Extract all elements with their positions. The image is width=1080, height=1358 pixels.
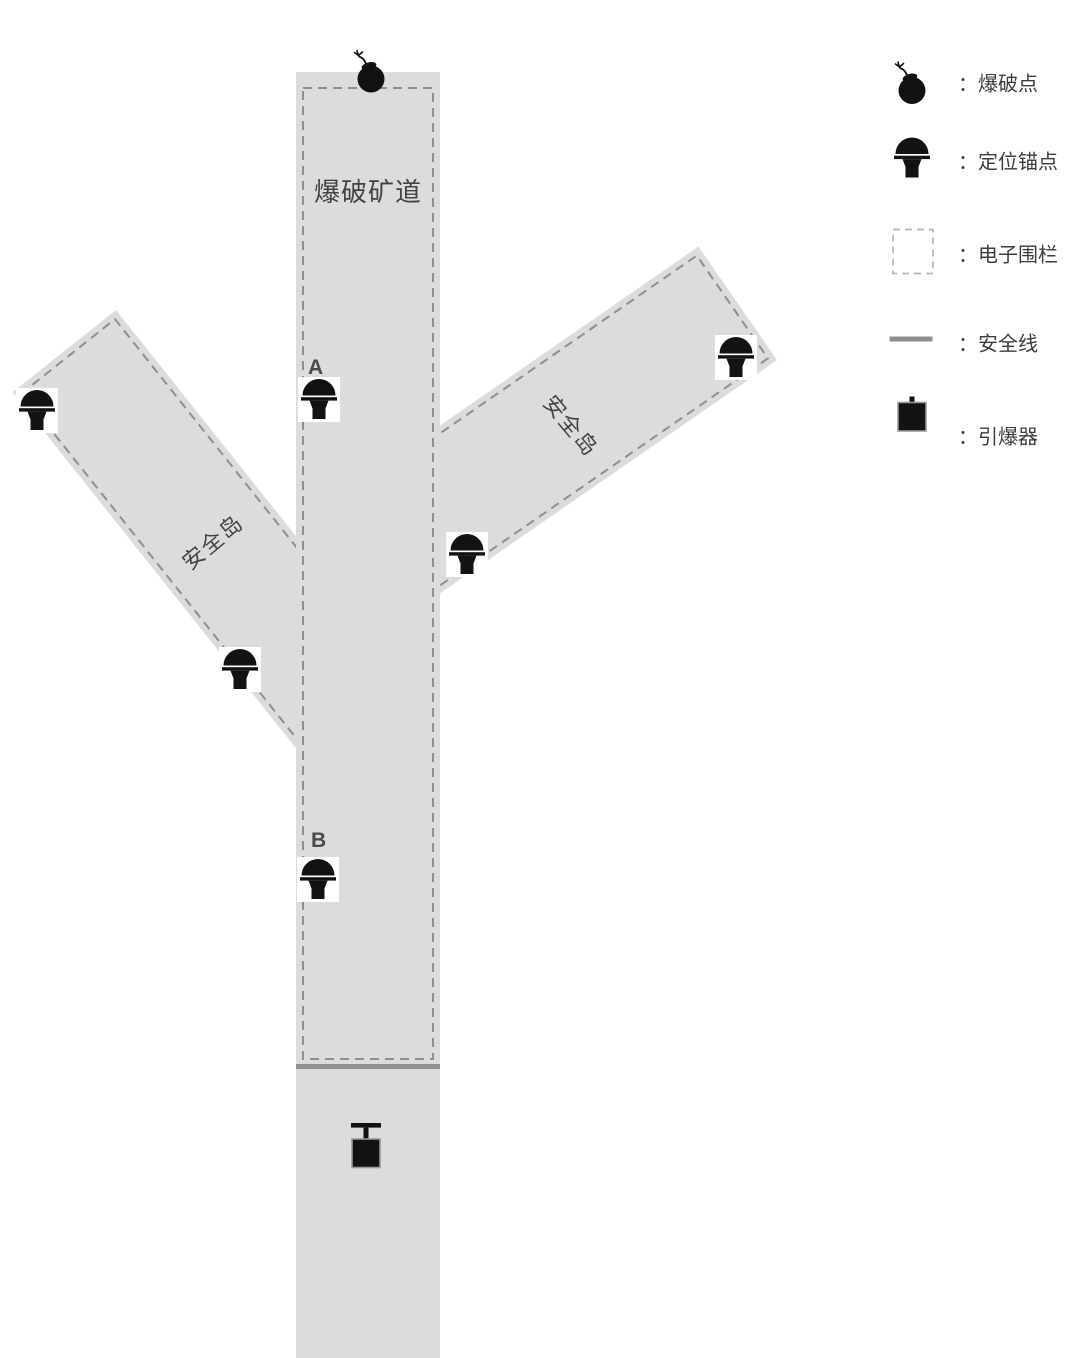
- safety-line-icon: [890, 337, 933, 342]
- legend: ：爆破点 ：定位锚点 ：电子围栏 ：安全线 ：引爆器: [0, 0, 1080, 500]
- legend-label-safety-line: ：安全线: [958, 328, 1038, 357]
- legend-label-detonator: ：引爆器: [958, 421, 1038, 450]
- legend-label-fence: ：电子围栏: [958, 239, 1058, 268]
- bomb-icon: [890, 55, 934, 110]
- safety-line: [296, 1064, 440, 1069]
- legend-label-anchor: ：定位锚点: [958, 146, 1058, 175]
- legend-label-blast-point: ：爆破点: [958, 68, 1038, 97]
- blast-site-diagram: 爆破矿道 安全岛 安全岛 A B ：爆破点 ：定位锚点 ：电子围栏 ：安全线 ：…: [0, 0, 1080, 1358]
- anchor-b-label: B: [311, 829, 326, 853]
- fence-icon: [891, 228, 935, 281]
- detonator-icon: [895, 397, 929, 450]
- anchor-icon: [892, 136, 932, 185]
